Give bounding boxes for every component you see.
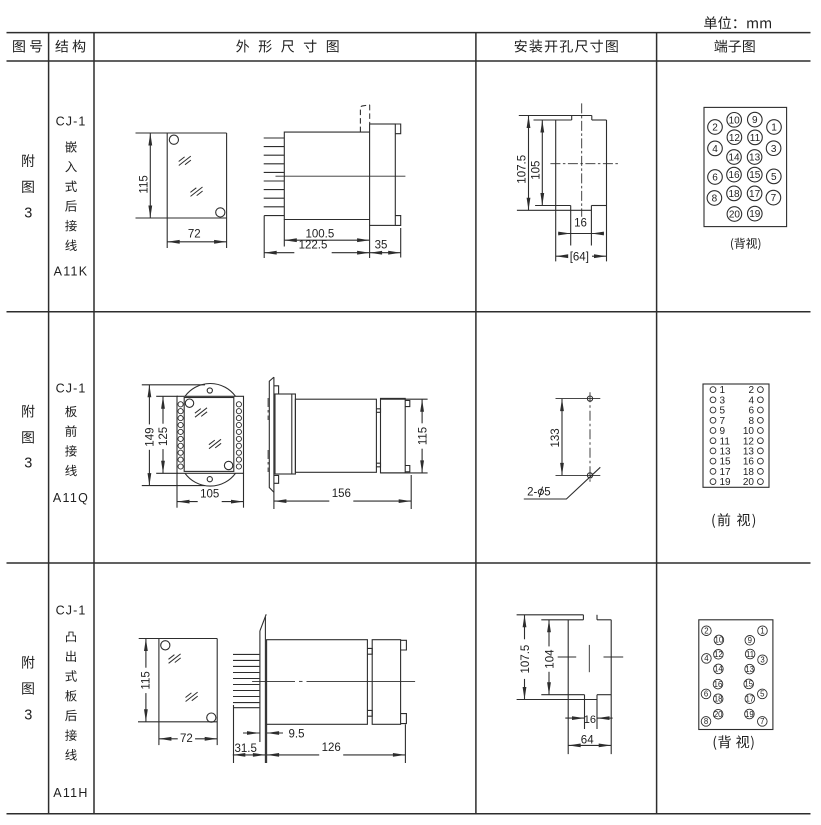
svg-text:12: 12 <box>729 133 741 144</box>
svg-text:13: 13 <box>749 153 761 164</box>
svg-text:7: 7 <box>771 193 777 204</box>
svg-text:CJ-1: CJ-1 <box>56 604 87 618</box>
svg-text:149: 149 <box>145 428 157 447</box>
svg-text:11: 11 <box>746 650 754 659</box>
svg-text:156: 156 <box>332 488 351 500</box>
svg-text:A11K: A11K <box>54 264 89 278</box>
svg-text:6: 6 <box>704 690 708 699</box>
svg-text:13: 13 <box>745 665 754 674</box>
svg-text:16: 16 <box>728 170 740 181</box>
svg-text:16: 16 <box>714 680 723 689</box>
svg-text:2: 2 <box>712 123 718 134</box>
svg-text:3: 3 <box>24 205 32 221</box>
svg-text:A11Q: A11Q <box>53 491 89 505</box>
svg-text:7: 7 <box>760 717 764 726</box>
svg-text:9: 9 <box>752 115 758 126</box>
svg-text:2-: 2- <box>527 486 537 498</box>
svg-text:19: 19 <box>749 209 761 220</box>
svg-text:14: 14 <box>728 153 740 164</box>
svg-text:19: 19 <box>745 710 754 719</box>
svg-text:115: 115 <box>418 427 430 445</box>
svg-text:2: 2 <box>704 627 708 636</box>
svg-text:133: 133 <box>550 428 562 447</box>
svg-text:104: 104 <box>545 649 557 669</box>
svg-text:15: 15 <box>744 680 753 689</box>
svg-text:1: 1 <box>771 123 777 134</box>
svg-text:17: 17 <box>749 189 761 200</box>
svg-text:9.5: 9.5 <box>289 728 305 740</box>
svg-text:3: 3 <box>24 456 32 472</box>
svg-text:105: 105 <box>200 489 219 501</box>
svg-text:3: 3 <box>760 656 764 665</box>
svg-text:A11H: A11H <box>53 786 89 800</box>
svg-text:107.5: 107.5 <box>520 645 532 674</box>
svg-text:19: 19 <box>720 477 732 488</box>
svg-text:5: 5 <box>544 486 550 498</box>
svg-text:72: 72 <box>180 733 193 745</box>
svg-text:11: 11 <box>750 133 761 144</box>
svg-text:15: 15 <box>749 170 761 181</box>
svg-text:[64]: [64] <box>570 251 589 263</box>
svg-text:20: 20 <box>743 477 755 488</box>
svg-text:20: 20 <box>714 710 723 719</box>
svg-text:115: 115 <box>141 671 153 689</box>
svg-text:125: 125 <box>158 427 170 446</box>
svg-text:31.5: 31.5 <box>235 743 257 755</box>
svg-text:17: 17 <box>745 695 754 704</box>
svg-text:1: 1 <box>760 627 764 636</box>
svg-text:105: 105 <box>531 161 543 180</box>
svg-text:8: 8 <box>712 194 718 205</box>
svg-text:64: 64 <box>581 735 594 747</box>
svg-text:5: 5 <box>760 690 765 699</box>
svg-text:20: 20 <box>729 210 741 221</box>
svg-text:18: 18 <box>714 695 723 704</box>
svg-text:16: 16 <box>574 218 587 230</box>
svg-text:72: 72 <box>188 229 201 241</box>
svg-text:35: 35 <box>375 240 388 252</box>
svg-text:10: 10 <box>729 115 741 126</box>
svg-text:12: 12 <box>714 650 723 659</box>
svg-text:8: 8 <box>704 717 708 726</box>
svg-text:122.5: 122.5 <box>299 240 328 252</box>
svg-text:14: 14 <box>714 665 723 674</box>
svg-text:126: 126 <box>322 742 341 754</box>
svg-text:3: 3 <box>24 707 32 723</box>
svg-text:10: 10 <box>715 636 724 645</box>
svg-text:6: 6 <box>712 173 718 184</box>
svg-text:115: 115 <box>138 175 150 193</box>
svg-text:5: 5 <box>771 172 777 183</box>
svg-text:18: 18 <box>728 189 740 200</box>
svg-text:100.5: 100.5 <box>306 228 335 240</box>
svg-text:3: 3 <box>771 144 777 155</box>
svg-text:107.5: 107.5 <box>516 155 528 184</box>
svg-text:9: 9 <box>748 636 752 645</box>
svg-text:CJ-1: CJ-1 <box>56 382 87 396</box>
svg-text:4: 4 <box>712 144 718 155</box>
svg-text:4: 4 <box>704 654 709 663</box>
svg-text:CJ-1: CJ-1 <box>56 114 87 128</box>
svg-text:16: 16 <box>584 714 596 726</box>
